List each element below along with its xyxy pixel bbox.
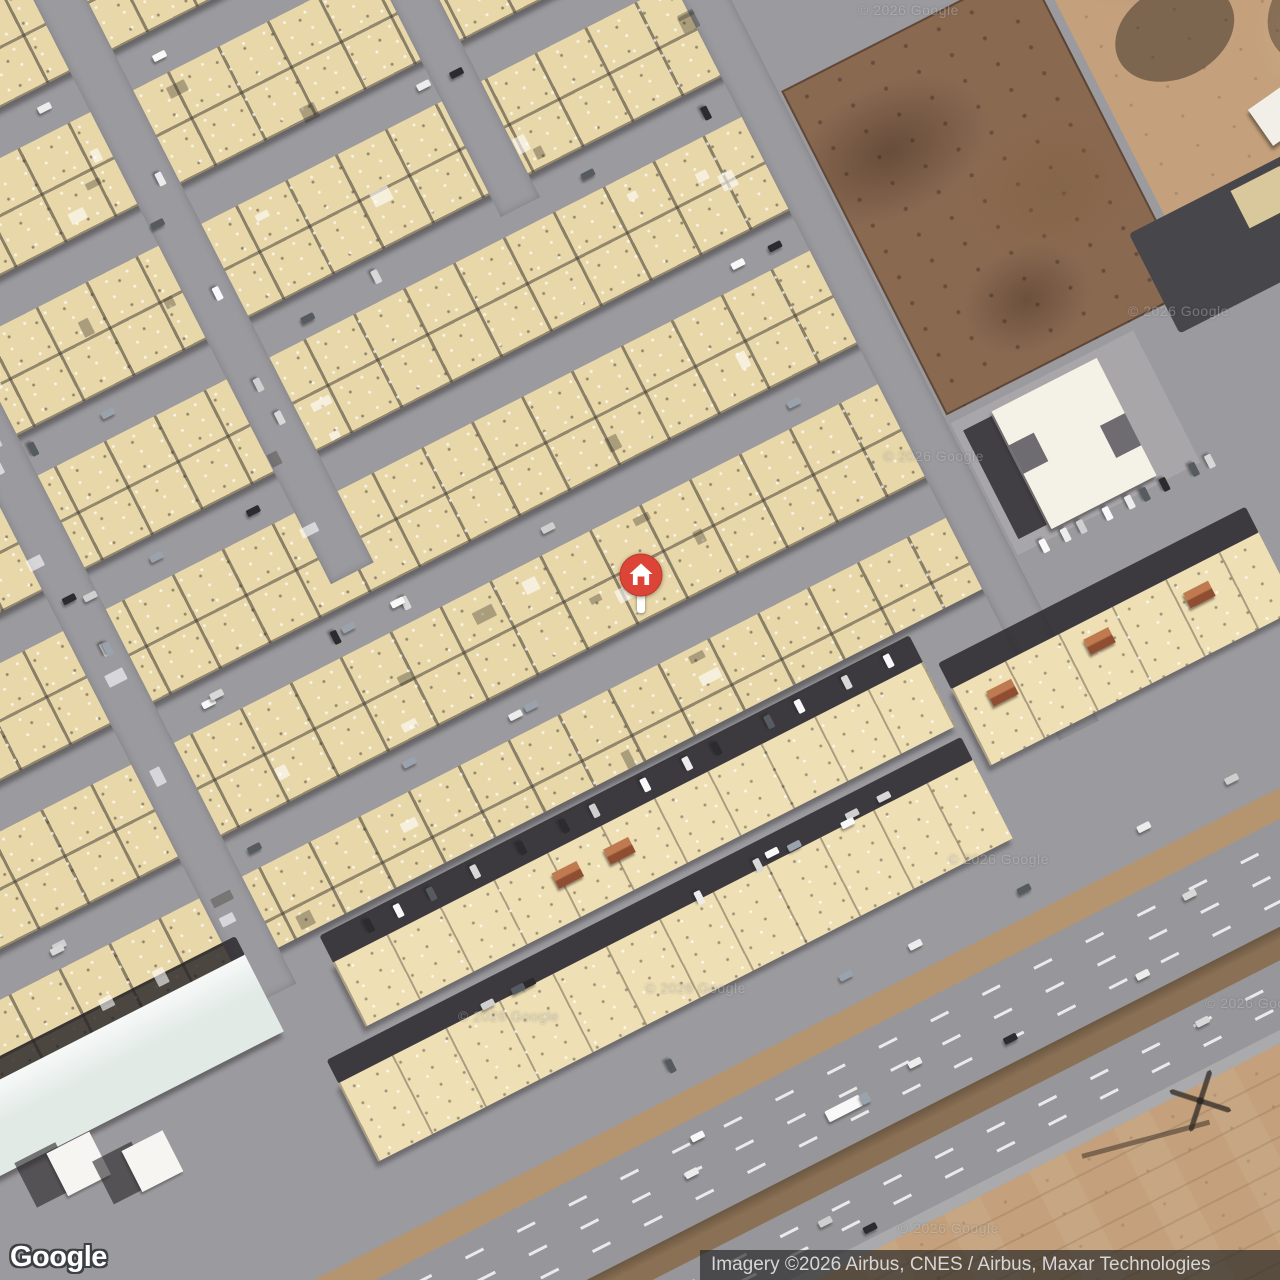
- google-watermark: © 2026 Google: [858, 2, 959, 18]
- car: [402, 756, 418, 769]
- car: [370, 269, 383, 285]
- car: [329, 630, 342, 646]
- car: [1076, 519, 1089, 535]
- google-logo[interactable]: Google: [10, 1241, 107, 1274]
- car: [508, 709, 524, 722]
- car: [907, 938, 923, 951]
- google-watermark: © 2026 Google: [898, 1220, 999, 1236]
- car: [1136, 821, 1152, 834]
- car: [151, 50, 167, 63]
- car: [523, 700, 539, 713]
- car: [149, 551, 165, 564]
- car: [700, 106, 713, 122]
- courtyard: [1100, 413, 1141, 458]
- car: [786, 396, 802, 409]
- car: [37, 102, 53, 115]
- car: [580, 168, 596, 181]
- car: [1060, 527, 1073, 543]
- car: [1224, 772, 1240, 785]
- car: [1188, 461, 1201, 477]
- car: [730, 257, 746, 270]
- location-marker[interactable]: [619, 553, 663, 615]
- gable-roof: [603, 837, 636, 865]
- attribution-bar: Imagery ©2026 Airbus, CNES / Airbus, Max…: [700, 1250, 1280, 1280]
- google-watermark: © 2026 Google: [948, 851, 1049, 867]
- car: [300, 312, 316, 325]
- car: [838, 970, 854, 983]
- car: [28, 441, 41, 457]
- map-canvas[interactable]: © 2026 Google© 2026 Google© 2026 Google©…: [0, 0, 1280, 1280]
- car: [389, 596, 405, 609]
- car: [100, 407, 116, 420]
- car: [664, 1058, 677, 1074]
- car: [341, 622, 357, 635]
- car: [209, 688, 225, 701]
- gable-roof: [551, 861, 584, 889]
- car: [540, 522, 556, 535]
- car: [1038, 538, 1051, 554]
- gable-roof: [1083, 627, 1116, 655]
- google-watermark: © 2026 Google: [645, 980, 746, 996]
- car: [1123, 494, 1136, 510]
- google-watermark: © 2026 Google: [883, 448, 984, 464]
- car: [1101, 506, 1114, 522]
- car: [1016, 883, 1032, 896]
- google-watermark: © 2026 Google: [1128, 303, 1229, 319]
- gable-roof: [1183, 581, 1216, 609]
- car: [1138, 487, 1151, 503]
- satellite-scene: [0, 0, 1280, 1280]
- car: [1203, 454, 1216, 470]
- google-watermark: © 2026 Google: [1205, 995, 1280, 1011]
- gable-roof: [986, 679, 1019, 707]
- car: [246, 842, 262, 855]
- attribution-text: Imagery ©2026 Airbus, CNES / Airbus, Max…: [711, 1254, 1210, 1275]
- car: [416, 79, 432, 92]
- house-icon: [619, 553, 663, 597]
- car: [246, 504, 262, 517]
- car: [767, 239, 783, 252]
- car: [1159, 476, 1172, 492]
- google-watermark: © 2026 Google: [458, 1008, 559, 1024]
